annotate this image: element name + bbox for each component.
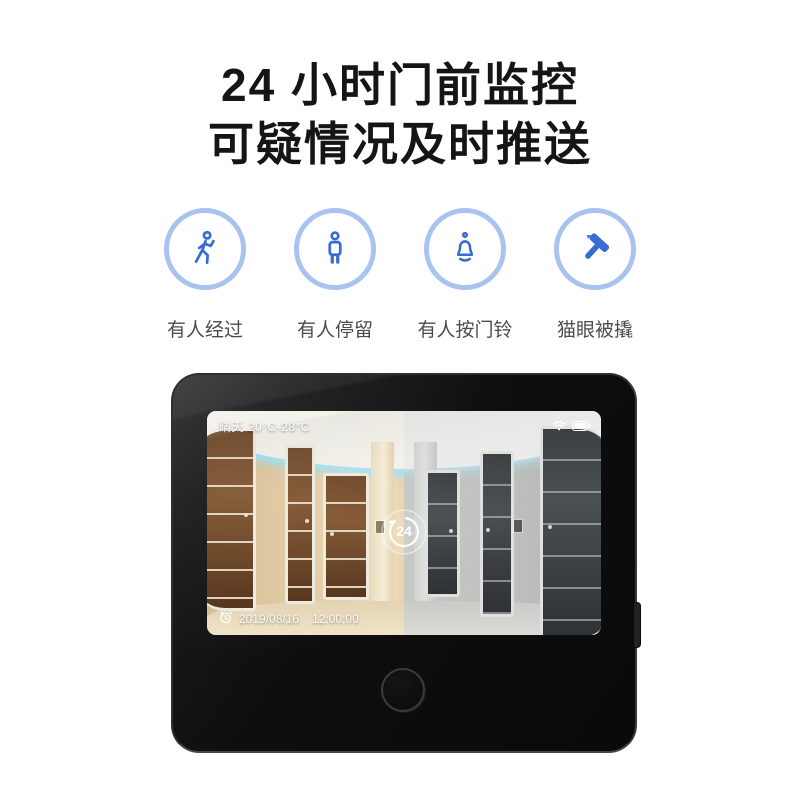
doorbell-icon (424, 208, 506, 290)
device-home-button (381, 668, 425, 712)
clock-icon (219, 611, 232, 627)
hammer-icon (554, 208, 636, 290)
hallway-scene-night (404, 411, 601, 635)
wood-door-left (207, 428, 256, 612)
title-line-1: 24 小时门前监控 (0, 56, 800, 115)
light-switch (514, 520, 522, 532)
hallway-scene-day (207, 411, 404, 635)
badge-label: 24 (380, 523, 428, 539)
smart-peephole-device: 晴天 20°C-28°C (171, 373, 637, 753)
standing-person-icon (294, 208, 376, 290)
battery-icon (572, 418, 591, 436)
device-screen: 晴天 20°C-28°C (207, 411, 601, 635)
wood-door-middle (285, 445, 316, 604)
title-line-2: 可疑情况及时推送 (0, 115, 800, 174)
wood-door-back (323, 473, 368, 601)
walking-person-icon (164, 208, 246, 290)
feature-person-passing: 有人经过 (164, 208, 246, 342)
weather-label: 晴天 20°C-28°C (219, 418, 310, 435)
gray-door-middle (480, 451, 514, 617)
feature-label: 有人停留 (297, 315, 373, 342)
feature-label: 有人经过 (167, 315, 243, 342)
feature-person-staying: 有人停留 (294, 208, 376, 342)
status-bar (552, 418, 591, 436)
feature-doorbell-ring: 有人按门铃 (424, 208, 506, 342)
24-hour-loop-icon: 24 (380, 508, 428, 556)
device-side-button (634, 603, 640, 647)
time-label: 12:00:00 (312, 612, 359, 626)
gray-door-right (540, 426, 601, 635)
promo-page: 24 小时门前监控 可疑情况及时推送 有人经过 (0, 0, 800, 800)
wifi-icon (552, 418, 566, 436)
date-label: 2019/08/16 (239, 612, 299, 626)
feature-peephole-pried: 猫眼被撬 (554, 208, 636, 342)
gray-door-back (425, 470, 460, 597)
feature-label: 有人按门铃 (418, 315, 513, 342)
feature-row: 有人经过 有人停留 有人按门铃 (0, 208, 800, 342)
timestamp: 2019/08/16 12:00:00 (219, 611, 359, 627)
feature-label: 猫眼被撬 (557, 315, 633, 342)
page-title: 24 小时门前监控 可疑情况及时推送 (0, 56, 800, 174)
